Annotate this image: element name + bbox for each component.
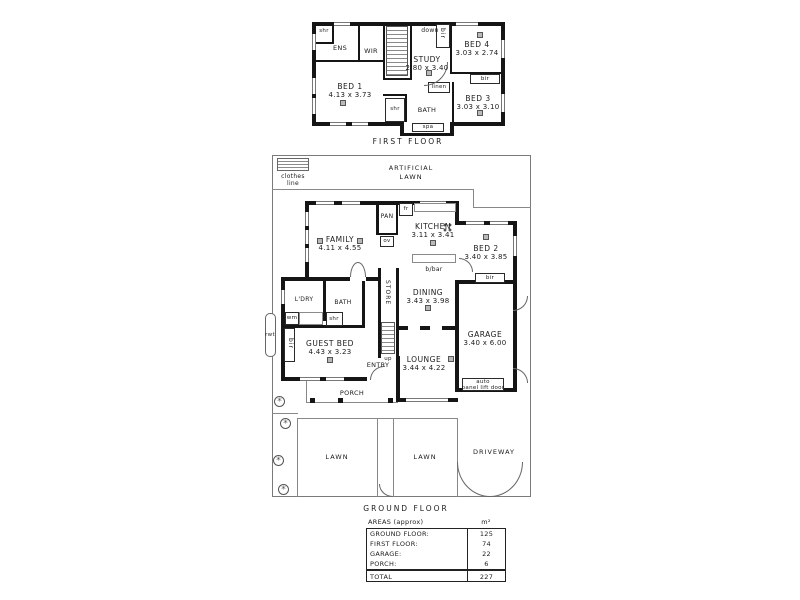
wall-segment xyxy=(452,82,454,122)
table-row: GARAGE: 22 xyxy=(367,549,505,559)
row-label: PORCH: xyxy=(367,559,467,569)
label-bath: BATH xyxy=(334,299,351,306)
wall-segment xyxy=(383,78,412,80)
row-value: 74 xyxy=(467,539,505,549)
boundary-line xyxy=(377,418,378,497)
stairs-up xyxy=(381,322,395,354)
ground-floor-caption: GROUND FLOOR xyxy=(363,504,448,513)
room-name: DINING xyxy=(406,288,449,297)
room-dim: 3.40 x 6.00 xyxy=(463,339,506,348)
wall-segment xyxy=(316,42,334,44)
table-row: FIRST FLOOR: 74 xyxy=(367,539,505,549)
wall-segment xyxy=(396,268,399,358)
room-dim: 3.40 x 3.85 xyxy=(464,253,507,262)
light-fixture-icon xyxy=(340,100,346,106)
light-fixture-icon xyxy=(483,234,489,240)
window xyxy=(501,94,505,112)
label-ens: ENS xyxy=(333,44,347,52)
label-panel-lift-door: panel lift door xyxy=(462,385,505,391)
window xyxy=(501,40,505,58)
label-spa: spa xyxy=(423,124,434,130)
label-down: down xyxy=(421,27,438,34)
first-floor-caption: FIRST FLOOR xyxy=(373,137,444,146)
label-artificial-lawn: LAWN xyxy=(399,173,422,181)
wall-segment xyxy=(281,377,367,381)
room-dim: 3.03 x 2.74 xyxy=(455,49,498,58)
window xyxy=(300,377,320,381)
areas-header-label: AREAS (approx) xyxy=(366,517,466,528)
room-label-dining: DINING 3.43 x 3.98 xyxy=(406,288,449,306)
wall-segment xyxy=(305,277,350,281)
label-breakfast-bar: b/bar xyxy=(425,266,442,273)
room-name: FAMILY xyxy=(318,235,361,244)
wall-segment xyxy=(383,24,385,80)
label-oven: ov xyxy=(383,238,390,244)
room-label-bed3: BED 3 3.03 x 3.10 xyxy=(456,94,499,112)
wall-segment xyxy=(442,326,456,330)
room-label-bed1: BED 1 4.13 x 3.73 xyxy=(328,82,371,100)
kitchen-bench xyxy=(414,203,456,212)
areas-table-grid: GROUND FLOOR: 125 FIRST FLOOR: 74 GARAGE… xyxy=(366,528,506,582)
room-dim: 3.43 x 3.98 xyxy=(406,297,449,306)
window xyxy=(312,98,316,114)
window xyxy=(305,248,309,262)
porch-post xyxy=(388,398,393,403)
laundry-trough xyxy=(299,312,323,325)
label-bir: bir xyxy=(481,76,489,82)
areas-header-unit: m² xyxy=(466,517,506,528)
porch-post xyxy=(310,398,315,403)
room-name: STUDY xyxy=(405,55,448,64)
light-fixture-icon xyxy=(448,356,454,362)
room-label-kitchen: KITCHEN 3.11 x 3.41 xyxy=(411,222,454,240)
wall-segment xyxy=(400,133,454,136)
plant-icon: * xyxy=(280,418,291,429)
boundary-line xyxy=(272,189,473,190)
room-label-bed4: BED 4 3.03 x 2.74 xyxy=(455,40,498,58)
plant-icon: * xyxy=(273,455,284,466)
row-label: FIRST FLOOR: xyxy=(367,539,467,549)
room-name: BED 2 xyxy=(464,244,507,253)
breakfast-bar-bench xyxy=(412,254,456,263)
room-name: LOUNGE xyxy=(402,355,445,364)
plant-icon: * xyxy=(278,484,289,495)
room-dim: 4.43 x 3.23 xyxy=(306,348,354,357)
window xyxy=(326,377,344,381)
wall-segment xyxy=(450,24,452,74)
room-label-bed2: BED 2 3.40 x 3.85 xyxy=(464,244,507,262)
label-fridge: fr xyxy=(404,206,409,212)
wall-segment xyxy=(362,281,365,327)
label-entry: ENTRY xyxy=(367,361,390,369)
row-value: 22 xyxy=(467,549,505,559)
total-label: TOTAL xyxy=(367,571,467,581)
row-value: 125 xyxy=(467,529,505,539)
wall-segment xyxy=(316,60,383,62)
wall-segment xyxy=(405,94,407,122)
boundary-line xyxy=(457,418,458,497)
room-dim: 3.44 x 4.22 xyxy=(402,364,445,373)
label-shr: shr xyxy=(319,28,329,34)
label-bath: BATH xyxy=(418,106,436,114)
room-dim: 3.03 x 3.10 xyxy=(456,103,499,112)
wall-segment xyxy=(455,284,459,392)
total-value: 227 xyxy=(467,571,505,581)
room-label-study: STUDY 2.80 x 3.40 xyxy=(405,55,448,73)
boundary-line xyxy=(272,413,298,414)
room-label-garage: GARAGE 3.40 x 6.00 xyxy=(463,330,506,348)
label-lawn-right: LAWN xyxy=(413,453,436,461)
boundary-line xyxy=(297,418,298,497)
label-driveway: DRIVEWAY xyxy=(473,448,515,456)
window xyxy=(305,230,309,244)
row-value: 6 xyxy=(467,559,505,569)
label-bir: bir xyxy=(287,338,294,349)
wall-segment xyxy=(398,326,408,330)
window xyxy=(513,236,517,256)
light-fixture-icon xyxy=(327,357,333,363)
wall-segment xyxy=(332,24,334,44)
window xyxy=(490,221,508,225)
room-label-lounge: LOUNGE 3.44 x 4.22 xyxy=(402,355,445,373)
label-rwt: rwt xyxy=(265,332,275,338)
boundary-line xyxy=(473,207,531,208)
room-dim: 3.11 x 3.41 xyxy=(411,231,454,240)
room-label-guest-bed: GUEST BED 4.43 x 3.23 xyxy=(306,339,354,357)
wall-segment xyxy=(396,356,400,402)
wall-segment xyxy=(420,326,430,330)
label-porch: PORCH xyxy=(340,389,364,397)
row-label: GARAGE: xyxy=(367,549,467,559)
label-artificial: ARTIFICIAL xyxy=(389,164,434,172)
label-bir: bir xyxy=(439,28,446,39)
label-bir: bir xyxy=(486,275,494,281)
room-dim: 4.11 x 4.55 xyxy=(318,244,361,253)
room-label-family: FAMILY 4.11 x 4.55 xyxy=(318,235,361,253)
plant-icon: * xyxy=(274,396,285,407)
room-dim: 4.13 x 3.73 xyxy=(328,91,371,100)
window xyxy=(312,34,316,50)
areas-table: AREAS (approx) m² GROUND FLOOR: 125 FIRS… xyxy=(366,517,506,582)
porch-edge xyxy=(306,381,307,402)
room-name: BED 1 xyxy=(328,82,371,91)
floor-plan-sheet: shr ENS WIR down bir STUDY 2.80 x 3.40 B… xyxy=(0,0,800,600)
window xyxy=(281,290,285,304)
label-store: STORE xyxy=(384,280,391,305)
label-wm: wm xyxy=(287,315,297,321)
label-lawn-left: LAWN xyxy=(325,453,348,461)
wall-segment xyxy=(396,203,398,235)
boundary-line xyxy=(473,189,474,207)
row-label: GROUND FLOOR: xyxy=(367,529,467,539)
light-fixture-icon xyxy=(430,240,436,246)
porch-edge xyxy=(306,402,398,403)
wall-segment xyxy=(376,201,379,235)
label-shr: shr xyxy=(390,106,400,112)
room-dim: 2.80 x 3.40 xyxy=(405,64,448,73)
room-name: BED 3 xyxy=(456,94,499,103)
clothes-line-icon xyxy=(277,158,309,171)
room-name: GUEST BED xyxy=(306,339,354,348)
wall-segment xyxy=(383,94,407,96)
room-name: GARAGE xyxy=(463,330,506,339)
window xyxy=(330,122,346,126)
label-laundry: L'DRY xyxy=(295,296,314,303)
window xyxy=(305,212,309,226)
label-shr: shr xyxy=(329,316,339,322)
window xyxy=(334,22,350,26)
window xyxy=(352,122,368,126)
window xyxy=(456,22,478,26)
table-row: GROUND FLOOR: 125 xyxy=(367,529,505,539)
window xyxy=(312,78,316,94)
window xyxy=(466,221,484,225)
light-fixture-icon xyxy=(477,32,483,38)
wall-segment xyxy=(358,24,360,62)
room-name: KITCHEN xyxy=(411,222,454,231)
room-name: BED 4 xyxy=(455,40,498,49)
label-linen: linen xyxy=(432,84,447,90)
label-wir: WIR xyxy=(364,47,378,55)
label-clothes: clothes xyxy=(281,173,305,180)
wall-segment xyxy=(376,233,398,235)
boundary-line xyxy=(393,418,394,497)
areas-table-header: AREAS (approx) m² xyxy=(366,517,506,528)
table-total-row: TOTAL 227 xyxy=(367,569,505,581)
window xyxy=(316,201,334,205)
table-row: PORCH: 6 xyxy=(367,559,505,569)
porch-post xyxy=(338,398,343,403)
window xyxy=(342,201,360,205)
window xyxy=(406,398,448,402)
label-clothes-line: line xyxy=(287,180,299,187)
label-pantry: PAN xyxy=(381,213,394,220)
